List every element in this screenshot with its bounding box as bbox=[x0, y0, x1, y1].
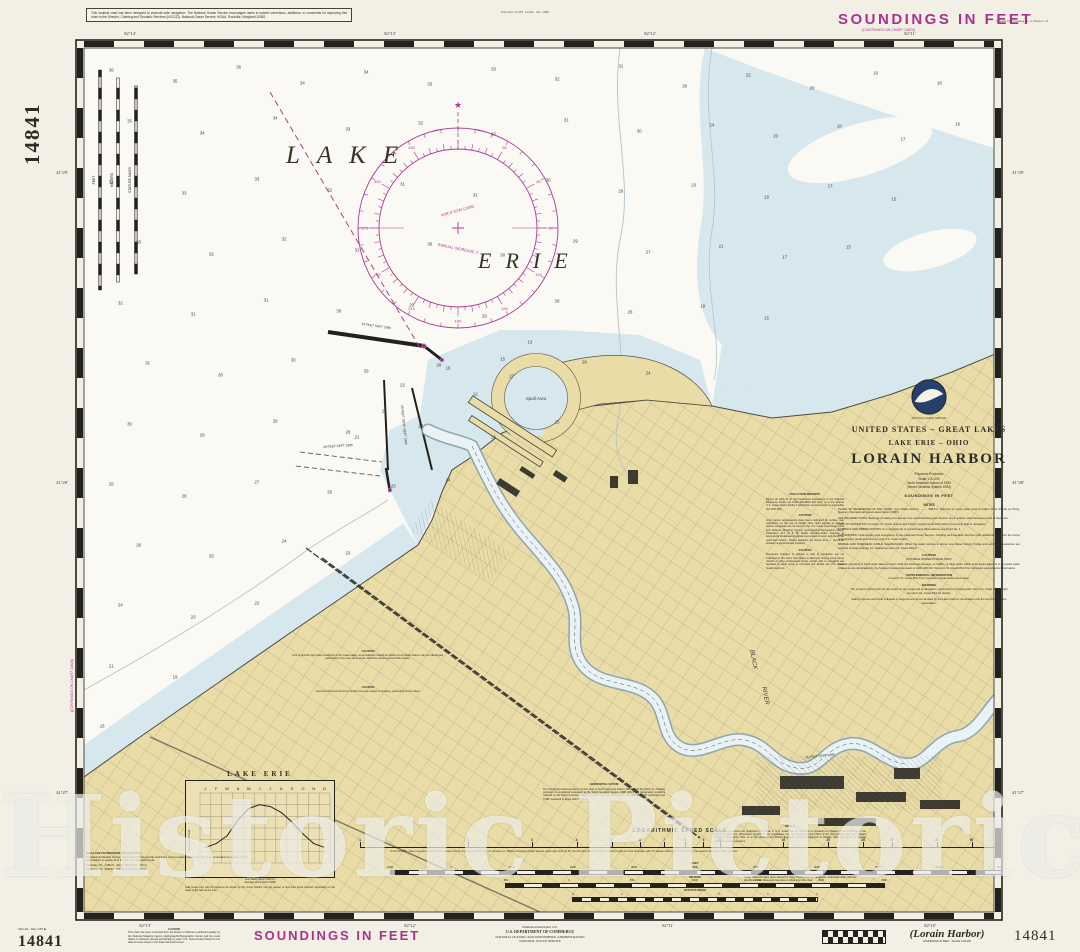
supplemental-body: Consult U.S. Coast Pilot 6 for important… bbox=[838, 577, 1020, 581]
bottom-right-chart-number: 14841 bbox=[1014, 928, 1057, 945]
catalog-note: Nautical Chart Catalog No. 4, Panels C, … bbox=[996, 20, 1068, 24]
bar-scale-tick: 4000 bbox=[692, 866, 698, 869]
bar-scale-rule bbox=[572, 897, 818, 902]
bar-scale-tick: 1000 bbox=[509, 866, 515, 869]
horizontal-datum-note: HORIZONTAL DATUM The horizontal referenc… bbox=[543, 780, 665, 801]
note-aids-to-navigation: AIDS TO NAVIGATION: Consult U.S. Coast G… bbox=[838, 523, 1020, 527]
svg-text:A: A bbox=[280, 786, 283, 791]
lake-name-word2: ERIE bbox=[478, 248, 582, 274]
bar-scale-tick: 9000 bbox=[997, 866, 1003, 869]
bottom-title-name: (Lorain Harbor) bbox=[892, 928, 1002, 940]
bottom-left-chart-number: 14841 bbox=[18, 933, 63, 951]
weather-station-2: Cleveland, Oh. KHB-59 162.55 MHz (Chan. … bbox=[86, 868, 248, 871]
svg-text:J: J bbox=[204, 786, 206, 791]
chart-title: LORAIN HARBOR bbox=[838, 451, 1020, 468]
bar-scales: FEET100001000200030004000500060007000800… bbox=[390, 862, 1000, 903]
pollution-header: POLLUTION REPORTS bbox=[766, 493, 844, 497]
speed-scale-tick: 25 bbox=[861, 838, 865, 842]
datum-line2: (World Geodetic System 1984) bbox=[838, 485, 1020, 489]
side-chart-number: 14841 bbox=[20, 103, 45, 166]
bar-scale-tick: 3000 bbox=[631, 866, 637, 869]
soundings-units: SOUNDINGS IN FEET bbox=[838, 493, 1020, 498]
graphic-scale-checker bbox=[822, 930, 886, 944]
svg-text:300: 300 bbox=[374, 179, 381, 184]
speed-scale-tick: 6 bbox=[639, 838, 641, 842]
bar-scale-tick: 0 bbox=[621, 893, 622, 896]
svg-text:M: M bbox=[225, 786, 228, 791]
bar-scale-tick: ¼ bbox=[572, 893, 574, 896]
speed-scale-tick: 8 bbox=[684, 838, 686, 842]
svg-text:30: 30 bbox=[502, 145, 507, 150]
gauge-ylabel: Elevation in feet bbox=[187, 830, 191, 851]
speed-scale-note: To find SPEED, place one point of divide… bbox=[360, 850, 1000, 853]
speed-scale-tick: 30 bbox=[890, 838, 894, 842]
continued-on-chart-top: (CONTINUED ON CHART 14820) bbox=[862, 28, 992, 33]
bottom-caution: CAUTION This chart has been corrected fr… bbox=[128, 928, 220, 945]
note-bridge-clearances: BRIDGE AND OVERHEAD CABLE CLEARANCES: Wh… bbox=[838, 543, 1020, 550]
speed-scale-tick: 3 bbox=[531, 838, 533, 842]
bar-scale-tick: 8000 bbox=[936, 866, 942, 869]
bar-scale-tick: ¼ bbox=[670, 893, 672, 896]
horizontal-datum-header: HORIZONTAL DATUM bbox=[543, 783, 665, 787]
publisher-line4: NATIONAL OCEAN SERVICE bbox=[450, 939, 630, 943]
speed-scale-tick: 50 bbox=[970, 838, 974, 842]
speed-scale-tick: 10 bbox=[718, 838, 722, 842]
note-sailing-directions: SAILING DIRECTIONS: Bearings of sailing … bbox=[838, 517, 1020, 521]
speed-scale-inset: LOGARITHMIC SPEED SCALE 1234567891015202… bbox=[360, 828, 1000, 853]
svg-text:210: 210 bbox=[408, 306, 415, 311]
bar-scale-tick: 1000 bbox=[692, 879, 698, 882]
warning-body: The prudent mariner will not rely solely… bbox=[838, 588, 1020, 595]
bar-scale-feet: FEET100001000200030004000500060007000800… bbox=[390, 862, 1000, 875]
scale-label-meters: METERS bbox=[110, 172, 114, 187]
note-symbols: SYMBOLS AND ABBREVIATIONS: For complete … bbox=[838, 528, 1020, 532]
scale-label-feet: FEET bbox=[92, 176, 96, 185]
pollution-body: Report all spills of oil and hazardous s… bbox=[766, 498, 844, 511]
bar-scale-tick: 5000 bbox=[753, 866, 759, 869]
speed-scale-tick: 40 bbox=[935, 838, 939, 842]
noaa-logo bbox=[910, 378, 948, 416]
rail-yard-hatch bbox=[756, 756, 942, 810]
svg-text:D: D bbox=[323, 786, 326, 791]
svg-text:S: S bbox=[291, 786, 294, 791]
speed-scale-tick: 5 bbox=[611, 838, 613, 842]
land-caution-2-body: Improved channels shown by broken lines … bbox=[300, 690, 436, 693]
compass-star-icon: ★ bbox=[454, 100, 462, 110]
bar-scale-tick: 1 bbox=[816, 893, 817, 896]
speed-scale-tick: 9 bbox=[703, 838, 705, 842]
svg-text:A: A bbox=[237, 786, 240, 791]
bar-scale-tick: ¾ bbox=[767, 893, 769, 896]
bar-scale-tick: 7000 bbox=[875, 866, 881, 869]
bar-scale-tick: 1500 bbox=[755, 879, 761, 882]
spoil-area-label: Spoil Area bbox=[526, 396, 547, 401]
scale-label-statute-miles: STATUTE MILES bbox=[128, 166, 132, 193]
soundings-in-feet-bottom: SOUNDINGS IN FEET bbox=[254, 928, 420, 943]
caution-radio-header: CAUTION bbox=[766, 514, 844, 518]
continued-on-chart-left: (CONTINUED ON CHART 14826) bbox=[70, 659, 75, 712]
svg-text:F: F bbox=[215, 786, 218, 791]
caution-aids-header: CAUTION bbox=[766, 549, 844, 553]
land-caution-1-body: Due to periodic high water conditions in… bbox=[286, 654, 450, 661]
svg-text:60: 60 bbox=[536, 179, 541, 184]
note-plane-of-reference: PLANE OF REFERENCE OF THE CHART (Low Wat… bbox=[838, 508, 1020, 515]
gauge-note2: Average curve (IGLD 1955) bbox=[185, 881, 335, 884]
subregion-line: LAKE ERIE – OHIO bbox=[838, 439, 1020, 447]
bar-scale-tick: 2000 bbox=[818, 879, 824, 882]
speed-scale-tick: 60 bbox=[998, 838, 1002, 842]
bar-scale-tick: 2500 bbox=[881, 879, 887, 882]
land-caution-1: CAUTION Due to periodic high water condi… bbox=[286, 650, 450, 660]
speed-scale-ruler: 1234567891015202530405060 bbox=[360, 835, 1000, 848]
weather-broadcasts: NOAA VHF-FM WEATHER BROADCASTS The Natio… bbox=[86, 852, 248, 871]
top-margin-note: This nautical chart has been designed to… bbox=[86, 8, 352, 22]
horizontal-datum-body: The horizontal reference datum of this c… bbox=[543, 788, 665, 801]
bar-scale-tick: 1000 bbox=[387, 866, 393, 869]
lake-gauge-inset: LAKE ERIE JFMAMJJASOND Elevation in feet… bbox=[185, 770, 335, 892]
svg-text:J: J bbox=[259, 786, 261, 791]
svg-text:O: O bbox=[301, 786, 304, 791]
agency-name: NATIONAL OCEAN SERVICE bbox=[838, 417, 1020, 420]
bar-scale-tick: 0 bbox=[450, 866, 451, 869]
speed-scale-tick: 20 bbox=[826, 838, 830, 842]
speed-scale-tick: 4 bbox=[576, 838, 578, 842]
bar-scale-tick: 2000 bbox=[570, 866, 576, 869]
bar-scale-tick: 0 bbox=[568, 879, 569, 882]
svg-text:180: 180 bbox=[455, 319, 462, 324]
edition-note: 34th Ed., May 2/87 ■ bbox=[18, 928, 46, 932]
bottom-title: (Lorain Harbor) SOUNDINGS IN FEET - SCAL… bbox=[892, 928, 1002, 943]
bar-scale-tick: 500 bbox=[504, 879, 508, 882]
gauge-caption: Lake levels vary with the seasons as sho… bbox=[185, 886, 335, 893]
bar-scale-tick: 500 bbox=[630, 879, 634, 882]
notes-column: POLLUTION REPORTS Report all spills of o… bbox=[766, 490, 844, 570]
svg-text:J: J bbox=[269, 786, 271, 791]
svg-text:150: 150 bbox=[501, 306, 508, 311]
speed-scale-tick: 2 bbox=[467, 838, 469, 842]
former-edition-note: Formerly LS 367, 1st Ed., Jan. 1960 bbox=[440, 11, 610, 15]
bottom-title-sub: SOUNDINGS IN FEET - SCALE 1:20,000 bbox=[892, 940, 1002, 943]
publisher-block: Published at Washington, D.C. U.S. DEPAR… bbox=[450, 926, 630, 943]
land-caution-2: CAUTION Improved channels shown by broke… bbox=[300, 686, 436, 693]
pwi-body: Vessels operating in fresh water lakes o… bbox=[838, 563, 1020, 570]
gauge-title: LAKE ERIE bbox=[185, 770, 335, 778]
speed-scale-tick: 1 bbox=[359, 838, 361, 842]
svg-text:M: M bbox=[247, 786, 250, 791]
caution-aids-body: Temporary changes or defects in aids to … bbox=[766, 553, 844, 570]
note-authorities: AUTHORITIES: Hydrography and topography … bbox=[838, 534, 1020, 541]
bottom-caution-body: This chart has been corrected from the N… bbox=[128, 931, 220, 944]
magenta-courses-note: Sailing courses and limits indicated in … bbox=[838, 598, 1020, 605]
svg-text:N: N bbox=[312, 786, 315, 791]
caution-radio-body: Only marine radiobeacons have been calib… bbox=[766, 519, 844, 546]
speed-scale-tick: 15 bbox=[782, 838, 786, 842]
weather-body: The National Weather Service stations li… bbox=[86, 856, 248, 863]
chart-page: 306090120150180210240270300330 ★ VAR 6°1… bbox=[0, 0, 1080, 952]
svg-text:240: 240 bbox=[374, 272, 381, 277]
bar-scale-rule bbox=[390, 870, 1002, 875]
bar-scale-tick: 6000 bbox=[814, 866, 820, 869]
bar-scale-meters: METERS50005001000150020002500 bbox=[390, 876, 1000, 889]
bar-scale-tick: ½ bbox=[718, 893, 720, 896]
bar-scale-miles: STATUTE MILES¼0¼½¾1 bbox=[390, 889, 1000, 902]
title-block: NATIONAL OCEAN SERVICE UNITED STATES – G… bbox=[838, 378, 1020, 605]
speed-scale-tick: 7 bbox=[663, 838, 665, 842]
lake-name-word1: LAKE bbox=[286, 142, 415, 170]
region-line: UNITED STATES – GREAT LAKES bbox=[838, 425, 1020, 434]
